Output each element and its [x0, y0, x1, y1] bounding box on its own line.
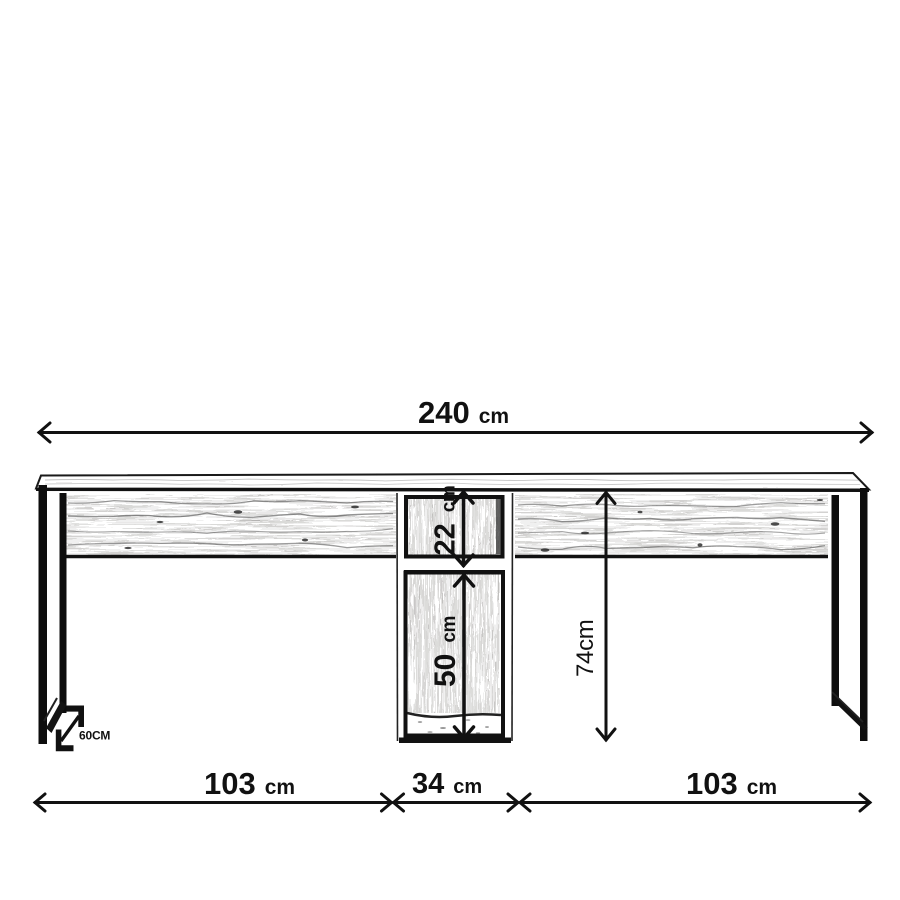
svg-text:60CM: 60CM: [79, 729, 110, 743]
svg-text:74cm: 74cm: [572, 620, 599, 678]
